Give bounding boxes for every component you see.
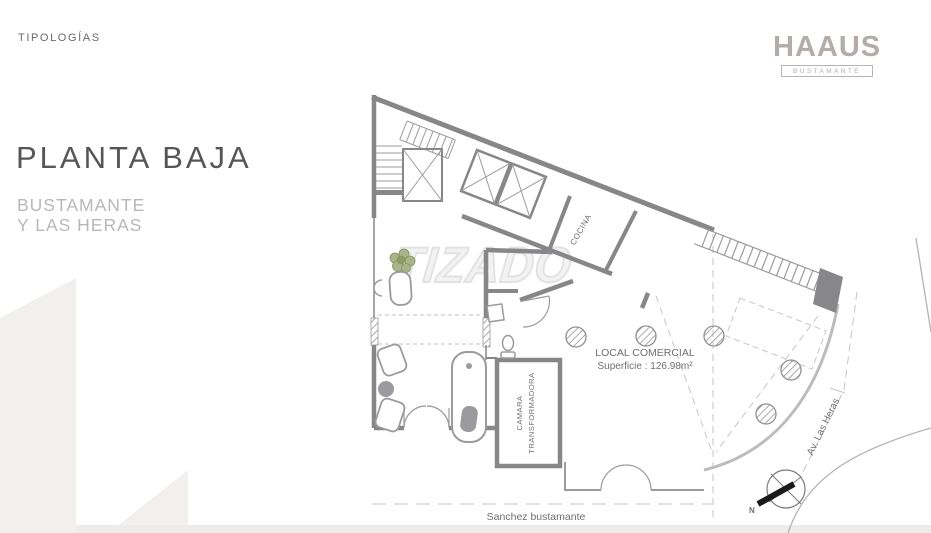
sink-bowl-icon bbox=[378, 381, 394, 397]
commercial-area-label: Superficie : 126.98m² bbox=[597, 361, 693, 372]
transformer-room: CAMARA TRANSFORMADORA bbox=[497, 360, 560, 466]
vanity-counter bbox=[376, 343, 408, 378]
plant-icon bbox=[390, 249, 415, 273]
washbasin-icon bbox=[487, 304, 504, 322]
staircase-top-right bbox=[694, 227, 843, 313]
structural-columns bbox=[566, 326, 801, 424]
compass-icon: N bbox=[749, 470, 805, 515]
page: TIPOLOGÍAS HAAUS BUSTAMANTE PLANTA BAJA … bbox=[0, 0, 931, 533]
bathtub-tap bbox=[466, 363, 472, 369]
bathroom-dashed-partitions bbox=[378, 315, 482, 344]
floorplan-drawing: CAMARA TRANSFORMADORA bbox=[0, 0, 931, 533]
street-bottom-label: Sanchez bustamante bbox=[487, 511, 586, 523]
toilet-icon bbox=[503, 336, 514, 351]
transformer-label-line2: TRANSFORMADORA bbox=[527, 372, 536, 453]
kitchen-label: COCINA bbox=[568, 213, 593, 247]
chair-icon bbox=[374, 280, 382, 296]
compass-north-label: N bbox=[749, 506, 755, 515]
street-right-label: Av. Las Heras bbox=[805, 397, 842, 457]
shaft-x-box bbox=[403, 149, 442, 201]
transformer-label-line1: CAMARA bbox=[515, 395, 524, 430]
commercial-title-label: LOCAL COMERCIAL bbox=[595, 347, 695, 359]
hatched-wall-sections bbox=[371, 318, 490, 347]
entry-furniture bbox=[374, 249, 415, 306]
reception-desk bbox=[389, 271, 412, 305]
bathroom-fixtures bbox=[374, 304, 515, 442]
toilet-tank bbox=[501, 352, 515, 358]
